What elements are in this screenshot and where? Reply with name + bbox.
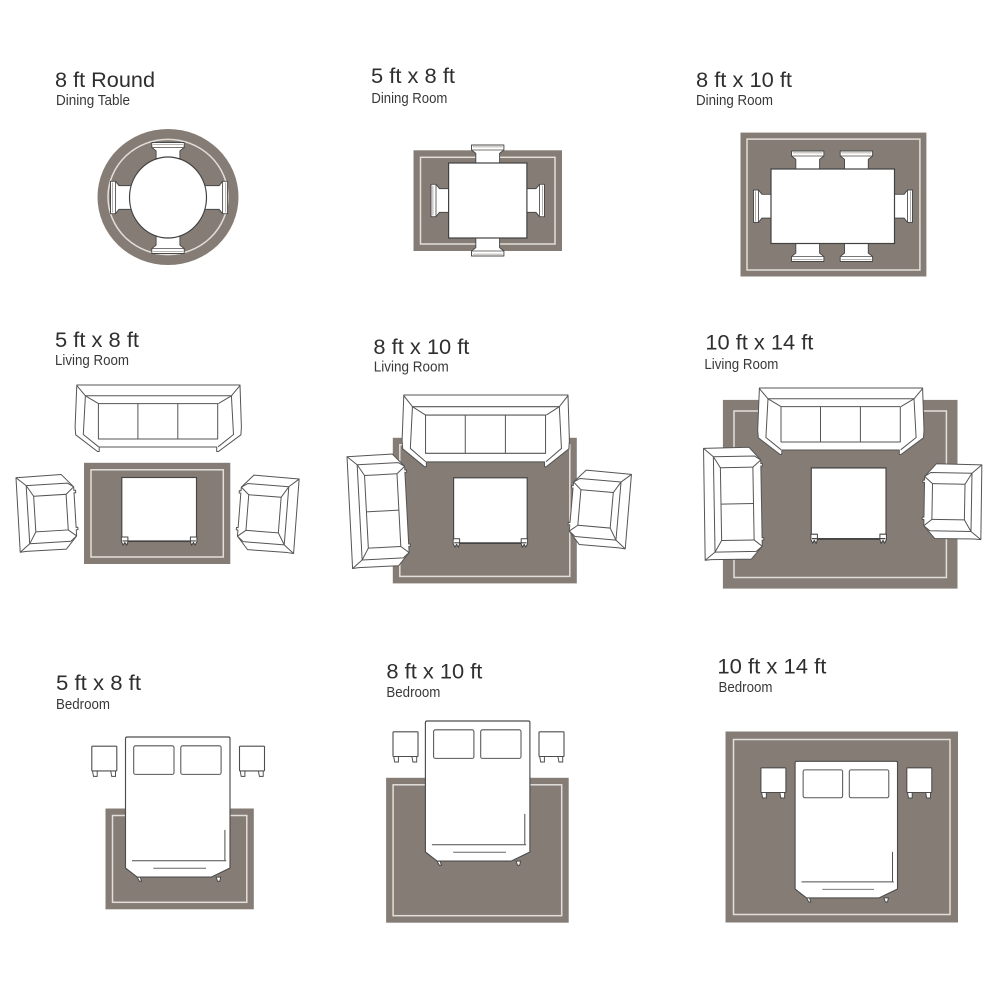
- svg-text:8 ft Round: 8 ft Round: [55, 69, 155, 92]
- svg-text:5 ft x 8 ft: 5 ft x 8 ft: [56, 672, 141, 695]
- svg-text:Bedroom: Bedroom: [386, 684, 440, 701]
- svg-text:Living Room: Living Room: [704, 356, 778, 373]
- svg-text:Bedroom: Bedroom: [719, 679, 773, 696]
- svg-text:Living Room: Living Room: [374, 358, 449, 375]
- svg-text:8 ft x 10 ft: 8 ft x 10 ft: [373, 336, 469, 359]
- svg-text:10 ft x 14 ft: 10 ft x 14 ft: [705, 332, 813, 355]
- svg-text:Living Room: Living Room: [55, 352, 129, 369]
- svg-text:Bedroom: Bedroom: [56, 696, 110, 713]
- svg-text:Dining Table: Dining Table: [56, 92, 130, 109]
- svg-text:10 ft x 14 ft: 10 ft x 14 ft: [717, 656, 826, 679]
- svg-text:Dining Room: Dining Room: [696, 92, 773, 109]
- svg-text:5 ft x 8 ft: 5 ft x 8 ft: [371, 65, 455, 88]
- svg-text:8 ft x 10 ft: 8 ft x 10 ft: [696, 69, 792, 92]
- svg-text:8 ft x 10 ft: 8 ft x 10 ft: [386, 661, 482, 684]
- svg-text:Dining Room: Dining Room: [371, 90, 447, 107]
- svg-text:5 ft x 8 ft: 5 ft x 8 ft: [55, 329, 139, 352]
